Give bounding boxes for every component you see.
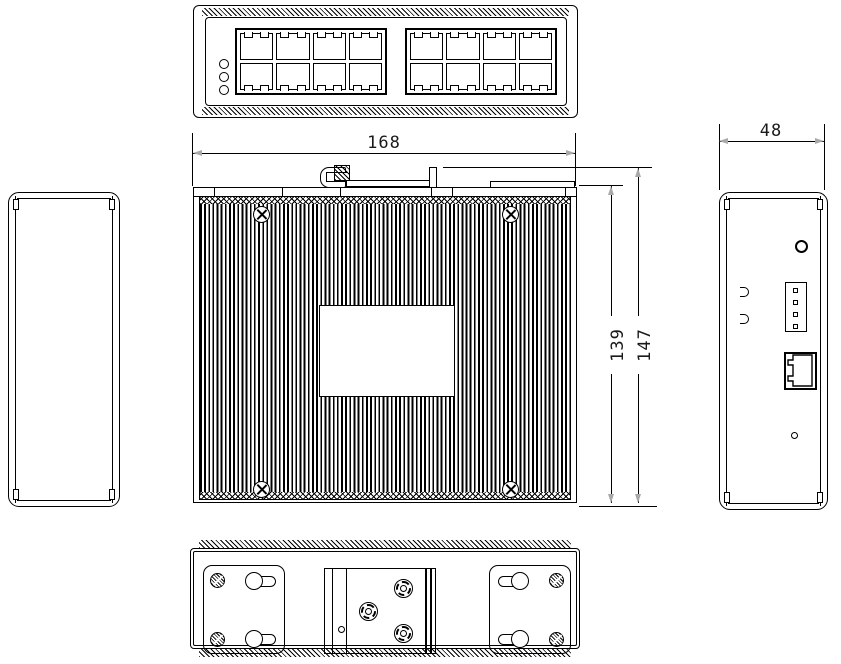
bracket-screw — [394, 624, 413, 643]
left-side-view — [8, 192, 120, 507]
cross-screw — [549, 632, 564, 647]
fin-edge-hatch-top — [202, 8, 569, 16]
rj45-port — [410, 33, 443, 60]
cross-screw — [210, 632, 225, 647]
corner-notch — [13, 489, 19, 500]
corner-notch — [13, 199, 19, 210]
led-indicator — [219, 72, 229, 82]
rj45-port — [240, 33, 273, 60]
dim-arrow — [815, 138, 824, 144]
keyhole-slot — [495, 572, 529, 590]
extension-line — [824, 124, 825, 190]
din-rail-clip-arm — [346, 180, 432, 187]
dim-arrow — [608, 494, 614, 503]
right-side-view — [719, 192, 828, 510]
bottom-outline — [190, 548, 580, 649]
rj45-port — [446, 33, 479, 60]
terminal-pin — [793, 288, 798, 293]
dimension-line-depth — [719, 141, 824, 142]
rj45-port — [349, 33, 382, 60]
corner-notch — [109, 199, 115, 210]
rj45-port-grid — [235, 28, 387, 95]
panel-edge-line — [17, 500, 111, 501]
extension-line — [719, 124, 720, 190]
phillips-screw — [253, 481, 270, 498]
led-hole — [795, 240, 808, 253]
dim-label-depth: 48 — [748, 122, 794, 140]
rj45-port — [240, 63, 273, 90]
corner-notch — [817, 199, 823, 210]
led-indicator — [219, 59, 229, 69]
corner-notch — [724, 199, 730, 210]
rj45-port — [446, 63, 479, 90]
dim-arrow — [566, 150, 575, 156]
wall-mount-plate-left — [203, 565, 285, 654]
extension-line — [579, 185, 623, 186]
panel-edge-line — [728, 503, 819, 504]
bracket-hole — [338, 626, 345, 633]
panel-edge-line — [820, 196, 821, 506]
extension-line — [579, 506, 657, 507]
top-view-port-panel — [193, 5, 578, 118]
dim-arrow — [719, 138, 728, 144]
heatsink-body-outline — [193, 187, 577, 503]
cross-screw — [210, 573, 225, 588]
cross-screw — [549, 573, 564, 588]
panel-edge-line — [112, 196, 113, 503]
rj45-jack-silhouette — [788, 355, 812, 386]
phillips-screw — [253, 206, 270, 223]
terminal-pin — [793, 324, 798, 329]
bottom-view — [190, 540, 580, 658]
terminal-latch-tab — [740, 314, 749, 324]
corner-notch — [724, 492, 730, 503]
power-terminal-block — [785, 282, 807, 332]
din-rail-clip-section — [334, 165, 350, 181]
dimension-line-width — [193, 153, 575, 154]
dim-arrow — [635, 168, 641, 177]
keyhole-slot — [495, 630, 529, 648]
dim-arrow — [193, 150, 202, 156]
panel-edge-line — [728, 198, 819, 199]
rj45-port — [483, 33, 516, 60]
keyhole-slot — [245, 630, 279, 648]
front-view-heatsink — [193, 165, 577, 507]
fin-serration-top — [200, 197, 570, 204]
panel-edge-line — [17, 198, 111, 199]
product-label-area — [319, 305, 455, 397]
rj45-port — [276, 33, 309, 60]
dim-label-total-height: 147 — [636, 316, 654, 374]
terminal-pin — [793, 300, 798, 305]
rj45-port — [483, 63, 516, 90]
ground-screw-hole — [791, 432, 798, 439]
rj45-port — [276, 63, 309, 90]
rj45-port — [519, 33, 552, 60]
dim-label-body-height: 139 — [609, 316, 627, 374]
extension-line — [192, 133, 193, 186]
terminal-latch-tab — [740, 287, 749, 297]
bracket-screw — [359, 602, 378, 621]
led-indicator — [219, 85, 229, 95]
fin-edge-hatch-top — [199, 540, 571, 548]
rj45-port — [519, 63, 552, 90]
panel-edge-line — [15, 196, 16, 503]
bracket-screw — [394, 579, 413, 598]
rj45-port — [349, 63, 382, 90]
phillips-screw — [502, 481, 519, 498]
phillips-screw — [502, 206, 519, 223]
din-rail-bracket — [324, 568, 436, 654]
fin-edge-hatch-bottom — [202, 107, 569, 115]
keyhole-slot — [245, 572, 279, 590]
corner-notch — [109, 489, 115, 500]
din-rail-clip-lip — [429, 167, 437, 188]
panel-edge-line — [726, 196, 727, 506]
rj45-port — [313, 33, 346, 60]
extension-line — [443, 167, 652, 168]
terminal-pin — [793, 312, 798, 317]
extension-line — [575, 133, 576, 186]
engineering-drawing-sheet: 168 48 139 147 — [0, 0, 841, 664]
rj45-port-grid — [405, 28, 557, 95]
dim-arrow — [608, 186, 614, 195]
dim-arrow — [635, 494, 641, 503]
rj45-port — [313, 63, 346, 90]
console-rj45-port — [784, 352, 817, 390]
rj45-port — [410, 63, 443, 90]
wall-mount-plate-right — [489, 565, 571, 654]
dim-label-width: 168 — [355, 134, 413, 152]
corner-notch — [817, 492, 823, 503]
